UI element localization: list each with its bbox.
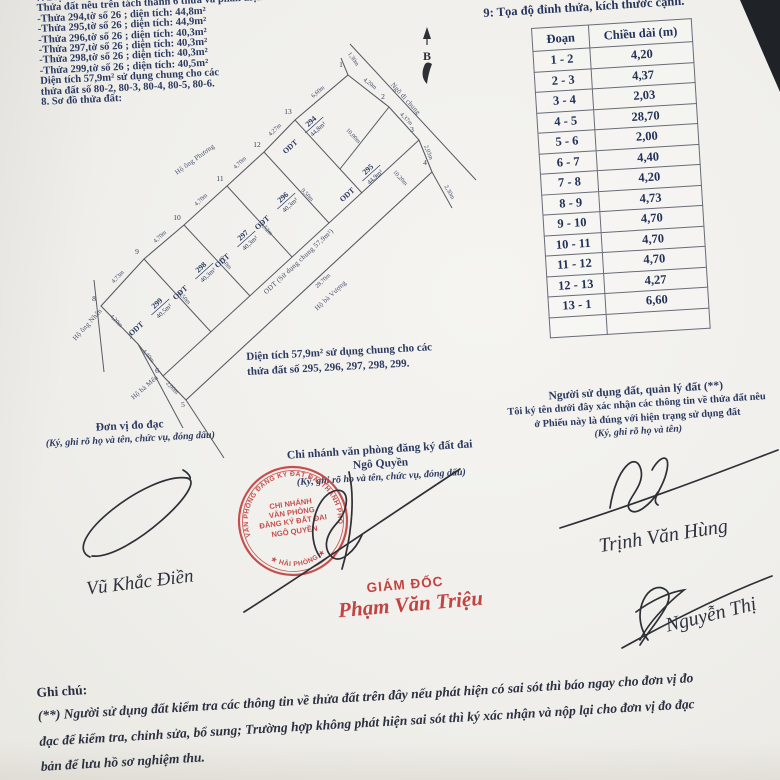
dimension-label: 4,70m — [233, 156, 248, 171]
parcel-label: ODT29544,9m² — [335, 158, 387, 208]
handwritten-name-landuser-1: Trịnh Văn Hùng — [597, 505, 780, 558]
boundary-line — [264, 152, 329, 223]
dimension-label: 4,70m — [153, 230, 169, 245]
neighbor-label: Hộ ông Nhân — [71, 307, 104, 342]
svg-text:ODT: ODT — [171, 283, 190, 302]
parcel-label: ODT29444,8m² — [278, 110, 330, 160]
vertex-number: 9 — [135, 247, 139, 256]
dimension-label: 4,37m — [398, 112, 413, 127]
signature-surveyor — [83, 470, 191, 557]
surveyor-column: Đơn vị đo đạc (Ký, ghi rõ họ và tên, chứ… — [29, 414, 230, 451]
landuser-column: Người sử dụng đất, quản lý đất (**) Tôi … — [497, 376, 778, 447]
svg-text:44,9m²: 44,9m² — [366, 169, 384, 187]
svg-text:296: 296 — [276, 190, 291, 205]
svg-text:299: 299 — [150, 296, 165, 311]
section9-title: 9: Tọa độ đỉnh thửa, kích thước cạnh. — [483, 0, 733, 21]
svg-text:297: 297 — [236, 228, 251, 243]
table-cell — [549, 314, 607, 338]
registry-stamp: VĂN PHÒNG ĐĂNG KÝ ĐẤT ĐAI THÀNH PHỐ ★ HẢ… — [225, 453, 361, 589]
vertex-number: 8 — [92, 294, 96, 303]
vertex-number: 12 — [253, 140, 261, 149]
svg-text:ODT: ODT — [253, 213, 272, 232]
dimension-label: 4,40m — [141, 349, 156, 365]
dimension-label: 2,03m — [422, 144, 433, 161]
shared-area-note: Diện tích 57,9m² sử dụng chung cho cácth… — [246, 336, 517, 379]
vertex-number: 7 — [129, 332, 133, 341]
boundary-line — [138, 344, 183, 428]
dimension-label: 9,50m — [299, 188, 314, 203]
dimension-label: 2,00m — [164, 381, 179, 396]
svg-text:ODT: ODT — [127, 319, 146, 338]
boundary-line — [184, 225, 250, 296]
dimension-label: 4,20m — [108, 314, 123, 329]
photo-dark-corner — [740, 0, 780, 92]
vertex-number: 3 — [410, 125, 414, 134]
section7-text: 7. Diện tích, loại đất sau đo đạc chỉnh … — [36, 0, 431, 108]
dimension-label: 4,70m — [194, 193, 210, 208]
dimension-label: 10,00m — [344, 128, 361, 146]
vertex-number: 5 — [181, 400, 185, 409]
svg-text:ODT: ODT — [281, 137, 300, 156]
boundary-line — [94, 280, 104, 372]
vertex-number: 13 — [284, 107, 292, 116]
svg-text:40,3m²: 40,3m² — [281, 197, 299, 215]
dimension-label: 10,20m — [391, 170, 408, 188]
boundary-line — [163, 140, 419, 376]
boundary-line — [432, 172, 452, 208]
neighbor-label: Hộ ông Phương — [173, 142, 216, 176]
vertex-number: 11 — [216, 174, 223, 183]
dimension-label: 9,50m — [176, 291, 191, 306]
dimension-label: 28,70m — [315, 273, 333, 290]
parcel-label: ODT29940,5m² — [124, 292, 176, 342]
dimension-label: 4,73m — [111, 270, 126, 285]
svg-text:44,8m²: 44,8m² — [309, 121, 327, 139]
dimension-label: 2,30m — [442, 184, 455, 200]
svg-text:40,3m²: 40,3m² — [199, 267, 217, 285]
edge-length-table: Đoạn Chiều dài (m) 1 - 24,202 - 34,373 -… — [531, 18, 711, 338]
dimension-label: 4,27m — [268, 123, 283, 138]
vertex-number: 10 — [173, 213, 181, 222]
svg-text:295: 295 — [361, 162, 376, 177]
boundary-line — [144, 259, 211, 332]
svg-text:298: 298 — [194, 260, 209, 275]
document-photo: 7. Diện tích, loại đất sau đo đạc chỉnh … — [0, 0, 780, 780]
svg-text:ODT: ODT — [338, 185, 357, 204]
boundary-line — [340, 107, 389, 169]
handwritten-name-landuser-2: Nguyễn Thị — [663, 581, 780, 637]
neighbor-label: Hộ bà Vượng — [313, 279, 348, 313]
parcel-label: ODT29740,3m² — [210, 224, 262, 274]
boundary-line — [295, 120, 362, 193]
svg-text:ODT: ODT — [213, 251, 232, 270]
vertex-number: 4 — [423, 158, 427, 167]
parcel-label: ODT29840,3m² — [168, 256, 220, 306]
svg-text:294: 294 — [304, 114, 319, 129]
neighbor-label: Hộ bà Mến — [129, 373, 160, 401]
dimension-label: 9,52m — [258, 222, 273, 237]
parcel-label: ODT29640,3m² — [250, 186, 302, 236]
shared-strip-label: ODT (Sử dụng chung 57,9m²) — [262, 227, 335, 296]
dimension-label: 9,50m — [217, 256, 232, 271]
svg-text:40,3m²: 40,3m² — [241, 235, 259, 253]
handwritten-name-surveyor: Vũ Khắc Điền — [54, 562, 225, 605]
svg-text:40,5m²: 40,5m² — [155, 303, 173, 321]
vertex-number: 6 — [155, 366, 159, 375]
notes-block: Ghi chú: (**) Người sử dụng đất kiểm tra… — [36, 640, 780, 779]
vertex-number: 2 — [381, 92, 385, 101]
boundary-line — [227, 186, 292, 257]
